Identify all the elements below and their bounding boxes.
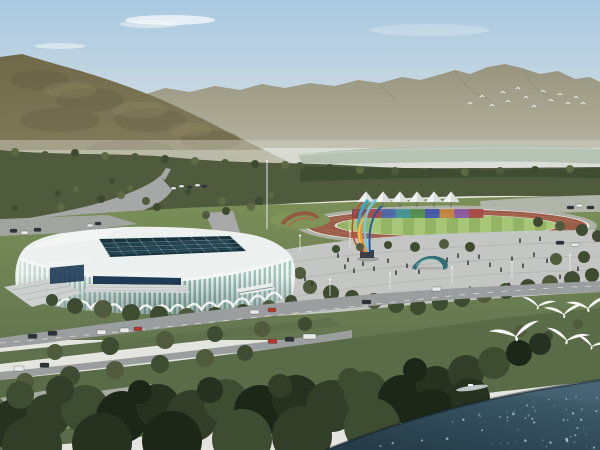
tree <box>11 148 19 156</box>
tree <box>303 280 317 294</box>
person <box>311 283 312 286</box>
tree <box>255 197 263 205</box>
sparkle <box>548 399 550 401</box>
person <box>489 264 490 267</box>
car <box>303 334 316 339</box>
person <box>446 259 447 262</box>
tree <box>555 221 565 231</box>
sparkle <box>392 442 394 444</box>
person <box>500 269 501 272</box>
sparkle <box>500 442 501 443</box>
car <box>95 222 101 225</box>
person-head <box>395 270 397 272</box>
tree <box>94 300 112 318</box>
person-head <box>577 266 579 268</box>
car <box>97 330 106 335</box>
person <box>559 276 560 279</box>
person <box>577 268 578 271</box>
tree <box>268 374 292 398</box>
car <box>285 337 294 342</box>
tree <box>92 182 98 188</box>
person-head <box>387 258 389 260</box>
car <box>250 310 259 314</box>
rainbow-panel <box>410 209 425 218</box>
tree <box>161 155 169 163</box>
sparkle <box>412 442 413 443</box>
tree <box>221 159 229 167</box>
tree <box>237 193 245 201</box>
tree <box>496 167 504 175</box>
tree <box>550 253 562 265</box>
car <box>202 185 207 188</box>
tree <box>573 319 583 329</box>
sparkle <box>570 436 572 438</box>
tree <box>77 199 85 207</box>
tree <box>97 195 105 203</box>
sparkle <box>478 413 481 416</box>
tree <box>576 224 588 236</box>
rendering-canvas: Aerial architectural rendering: a white … <box>0 0 600 450</box>
sparkle <box>575 396 577 398</box>
person-head <box>546 258 548 260</box>
sparkle <box>586 446 588 448</box>
person-head <box>533 252 535 254</box>
tree <box>202 211 210 219</box>
person <box>418 271 419 274</box>
person <box>373 268 374 271</box>
person-head <box>508 282 510 284</box>
sparkle <box>585 434 586 435</box>
person <box>539 238 540 241</box>
tree <box>533 217 543 227</box>
car <box>268 339 277 344</box>
tree <box>25 200 31 206</box>
light-head <box>389 272 391 274</box>
tree <box>101 337 119 355</box>
sparkle <box>517 429 519 431</box>
car <box>120 328 129 333</box>
sparkle <box>532 406 534 408</box>
tree <box>142 197 150 205</box>
sparkle <box>379 445 381 447</box>
sparkle <box>567 419 569 421</box>
car <box>171 187 176 190</box>
sparkle <box>583 428 584 429</box>
sparkle <box>526 404 528 406</box>
tree <box>207 326 223 342</box>
sparkle <box>528 414 530 416</box>
car <box>10 229 17 233</box>
sparkle <box>525 417 527 419</box>
person <box>337 255 338 258</box>
person <box>533 254 534 257</box>
tree <box>156 331 174 349</box>
sparkle <box>533 401 534 402</box>
sparkle <box>593 447 595 449</box>
front-entrance <box>84 271 190 293</box>
tree <box>403 358 427 382</box>
tree <box>73 186 79 192</box>
person-head <box>373 266 375 268</box>
tree <box>151 355 169 373</box>
person-head <box>539 236 541 238</box>
car <box>195 184 200 187</box>
sparkle <box>554 405 555 406</box>
tree <box>237 345 253 361</box>
tree <box>128 380 152 404</box>
light-head <box>329 278 331 280</box>
tree <box>578 251 590 263</box>
person-head <box>446 257 448 259</box>
aerial-stadium-rendering: Aerial architectural rendering: a white … <box>0 0 600 450</box>
tree <box>384 241 392 249</box>
tree <box>55 190 61 196</box>
flower-swirl-garden <box>270 211 330 229</box>
car <box>268 308 276 312</box>
tree <box>131 153 139 161</box>
car <box>179 185 184 188</box>
tree <box>191 157 199 165</box>
sparkle <box>581 408 583 410</box>
car <box>21 231 28 235</box>
tree <box>251 160 259 168</box>
person-head <box>467 260 469 262</box>
person-head <box>347 257 349 259</box>
tree <box>338 368 362 392</box>
tree <box>478 347 510 379</box>
tree <box>67 298 83 314</box>
person-head <box>311 281 313 283</box>
tree <box>410 242 420 252</box>
car <box>362 300 371 304</box>
tree <box>247 203 255 211</box>
car <box>14 366 24 371</box>
tree <box>326 164 334 172</box>
sparkle <box>481 429 483 431</box>
tree <box>296 162 304 170</box>
person-head <box>406 263 408 265</box>
tree <box>109 178 115 184</box>
tree <box>218 197 226 205</box>
car <box>187 186 192 189</box>
sparkle <box>512 413 515 416</box>
person-head <box>559 274 561 276</box>
sparkle <box>421 439 423 441</box>
person-head <box>522 263 524 265</box>
tree <box>106 361 124 379</box>
tree <box>391 167 399 175</box>
tree <box>101 152 109 160</box>
person-head <box>353 268 355 270</box>
rainbow-panel <box>381 209 396 218</box>
car <box>587 206 594 209</box>
sparkle <box>576 427 578 429</box>
person <box>467 262 468 265</box>
tree <box>465 242 475 252</box>
sparkle <box>566 409 567 410</box>
car <box>576 204 583 207</box>
person <box>522 265 523 268</box>
tree <box>439 239 449 249</box>
sparkle <box>507 420 509 422</box>
sparkle <box>491 444 492 445</box>
sparkle <box>531 418 533 420</box>
sparkle <box>565 438 568 441</box>
person <box>395 272 396 275</box>
sparkle <box>534 410 535 411</box>
tree <box>222 207 230 215</box>
tree <box>196 349 214 367</box>
sparkle <box>542 440 543 441</box>
tree <box>585 268 599 282</box>
tree <box>6 381 34 409</box>
tree <box>37 194 43 200</box>
sparkle <box>507 442 509 444</box>
person <box>519 240 520 243</box>
rainbow-panel <box>454 209 469 218</box>
light-head <box>451 266 453 268</box>
tree <box>46 376 74 404</box>
person-head <box>489 262 491 264</box>
person-head <box>337 253 339 255</box>
sparkle <box>562 419 565 422</box>
sparkle <box>452 421 453 422</box>
tree <box>268 192 274 198</box>
person-head <box>418 269 420 271</box>
person <box>406 265 407 268</box>
person <box>362 263 363 266</box>
car <box>87 224 93 227</box>
tree <box>254 321 270 337</box>
sparkle <box>506 411 507 412</box>
person <box>353 270 354 273</box>
tree <box>46 294 58 306</box>
tree <box>117 191 125 199</box>
car <box>48 331 57 336</box>
tree <box>461 168 469 176</box>
rainbow-wall <box>352 209 483 218</box>
sparkle <box>572 412 575 415</box>
rainbow-panel <box>396 209 411 218</box>
sparkle <box>446 437 449 440</box>
person-head <box>478 254 480 256</box>
person <box>478 256 479 259</box>
tree <box>356 166 364 174</box>
person <box>511 258 512 261</box>
sparkle <box>549 441 552 444</box>
sparkle <box>574 434 576 436</box>
tree <box>122 304 140 322</box>
tree <box>12 205 18 211</box>
tree <box>153 203 161 211</box>
car <box>432 287 441 291</box>
car <box>134 327 142 331</box>
tree <box>426 168 434 176</box>
tree <box>529 333 551 355</box>
person-head <box>511 256 513 258</box>
sparkle <box>507 416 509 418</box>
person <box>344 266 345 269</box>
light-head <box>299 234 301 236</box>
sparkle <box>533 421 535 423</box>
person-head <box>362 261 364 263</box>
person <box>304 278 305 281</box>
tree <box>57 203 65 211</box>
light-head <box>569 254 571 256</box>
tree <box>197 377 223 403</box>
car <box>34 228 41 232</box>
rainbow-panel <box>425 209 440 218</box>
car <box>571 243 579 247</box>
tree <box>531 166 539 174</box>
sparkle <box>499 416 501 418</box>
rainbow-panel <box>469 209 484 218</box>
tree <box>506 340 532 366</box>
person-head <box>500 267 502 269</box>
sparkle <box>524 439 527 442</box>
light-head <box>349 230 351 232</box>
rainbow-panel <box>440 209 455 218</box>
sparkle <box>595 410 597 412</box>
sparkle <box>574 441 576 443</box>
person <box>546 260 547 263</box>
sparkle <box>513 411 515 413</box>
tree <box>41 151 49 159</box>
person <box>387 260 388 263</box>
person <box>457 255 458 258</box>
tree <box>566 165 574 173</box>
tree <box>281 161 289 169</box>
tree <box>298 317 312 331</box>
tree <box>172 193 178 199</box>
car <box>28 334 37 339</box>
car <box>567 206 574 209</box>
tree <box>47 344 63 360</box>
person-head <box>519 238 521 240</box>
tree <box>332 245 340 253</box>
person-head <box>344 264 346 266</box>
sparkle <box>546 446 547 447</box>
person <box>347 259 348 262</box>
tree <box>127 185 133 191</box>
sparkle <box>462 418 464 420</box>
car <box>40 363 49 368</box>
person-head <box>304 276 306 278</box>
tree <box>185 189 191 195</box>
tree <box>71 149 79 157</box>
sparkle <box>566 398 568 400</box>
tree <box>356 243 364 251</box>
person-head <box>457 253 459 255</box>
sparkle <box>596 397 598 399</box>
sparkle <box>515 441 516 442</box>
sparkle <box>580 419 582 421</box>
car <box>556 241 564 245</box>
